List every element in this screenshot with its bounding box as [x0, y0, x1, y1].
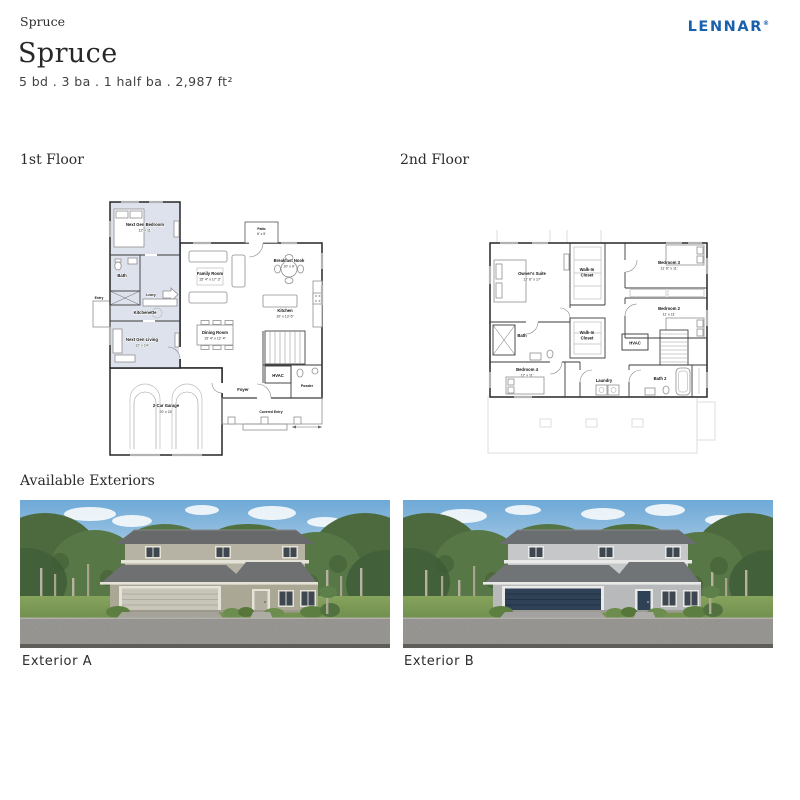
room-label-walk-in-closet-2b: Closet	[581, 336, 594, 341]
house	[483, 530, 701, 613]
dim-arrow-right	[318, 426, 322, 429]
road-texture	[20, 619, 390, 648]
first-floor-plan: Next Gen Bedroom 12' x 11' Bath Lndry En…	[85, 195, 330, 460]
room-label-bath2: Bath 2	[654, 376, 667, 381]
room-label-bedroom3: Bedroom 3	[658, 260, 681, 265]
exterior-a-image	[20, 500, 390, 648]
house	[100, 530, 318, 613]
room-label-garage: 2-Car Garage	[153, 403, 180, 408]
exterior-a-scene	[20, 500, 390, 648]
room-label-bath-2f: Bath	[517, 333, 527, 338]
room-label-bedroom2: Bedroom 2	[658, 306, 681, 311]
room-label-walk-in-closet-2: Walk-In	[580, 330, 595, 335]
room-label-bedroom4: Bedroom 4	[516, 367, 539, 372]
garage-door	[119, 586, 221, 612]
room-label-family-room: Family Room	[197, 271, 224, 276]
room-label-hvac-2: HVAC	[629, 341, 641, 346]
exterior-b-image	[403, 500, 773, 648]
garage-door	[502, 586, 604, 612]
room-label-covered-entry: Covered Entry	[259, 410, 282, 414]
room-label-owners-suite: Owner's Suite	[518, 271, 546, 276]
room-dims-next-gen-bedroom: 12' x 11'	[139, 229, 152, 233]
room-label-walk-in-closet-1: Walk-In	[580, 267, 595, 272]
second-floor-plan: Owner's Suite 13' 6" x 17' Walk-In Close…	[470, 230, 720, 465]
room-label-walk-in-closet-1b: Closet	[581, 273, 594, 278]
road-edge	[403, 644, 773, 648]
exterior-b-scene	[403, 500, 773, 648]
porch-step	[243, 424, 287, 430]
room-dims-dining-room: 15' 4" x 12' 4"	[204, 337, 226, 341]
road-texture	[403, 619, 773, 648]
room-label-lndry: Lndry	[146, 293, 156, 297]
room-label-foyer: Foyer	[237, 387, 249, 392]
first-floor-heading: 1st Floor	[20, 152, 84, 168]
room-label-powder: Powder	[301, 384, 314, 388]
room-label-entry: Entry	[95, 296, 104, 300]
room-label-kitchenette: Kitchenette	[134, 310, 157, 315]
lennar-logo[interactable]: LENNAR®	[688, 19, 769, 35]
second-floor-heading: 2nd Floor	[400, 152, 469, 168]
room-label-kitchen: Kitchen	[277, 308, 293, 313]
room-label-dining-room: Dining Room	[202, 330, 228, 335]
registered-mark: ®	[763, 20, 769, 27]
room-dims-bedroom4: 12' x 11'	[521, 374, 534, 378]
exterior-a-label: Exterior A	[22, 654, 92, 669]
room-label-hvac: HVAC	[272, 373, 284, 378]
room-dims-kitchen: 10' x 13' 6"	[276, 315, 294, 319]
breadcrumb[interactable]: Spruce	[20, 14, 65, 29]
room-dims-owners-suite: 13' 6" x 17'	[523, 278, 541, 282]
room-dims-bedroom3: 11' 6" x 11'	[661, 267, 678, 271]
lennar-logo-text: LENNAR	[688, 19, 763, 35]
room-dims-patio: 6' x 5'	[257, 232, 266, 236]
front-door	[252, 589, 270, 612]
room-dims-breakfast-nook: 10' x 9'	[283, 265, 294, 269]
floor-plan-page: Spruce LENNAR® Spruce 5 bd . 3 ba . 1 ha…	[0, 0, 800, 800]
stairs-2	[660, 330, 688, 365]
room-label-breakfast-nook: Breakfast Nook	[274, 258, 305, 263]
page-title: Spruce	[18, 38, 118, 69]
room-dims-bedroom2: 11' x 11'	[663, 313, 676, 317]
exterior-b-label: Exterior B	[404, 654, 474, 669]
specs-line: 5 bd . 3 ba . 1 half ba . 2,987 ft²	[19, 74, 233, 89]
entry-stoop	[93, 301, 110, 327]
room-label-bath: Bath	[117, 273, 127, 278]
room-label-laundry: Laundry	[596, 378, 613, 383]
room-label-patio: Patio	[257, 227, 265, 231]
room-dims-family-room: 15' 4" x 17' 3"	[199, 278, 221, 282]
front-door	[635, 589, 653, 612]
room-label-next-gen-bedroom: Next Gen Bedroom	[126, 222, 164, 227]
room-dims-garage: 20' x 20'	[159, 410, 172, 414]
available-exteriors-heading: Available Exteriors	[20, 473, 155, 489]
dim-arrow-left	[292, 426, 296, 429]
room-label-next-gen-living: Next Gen Living	[126, 337, 158, 342]
road-edge	[20, 644, 390, 648]
room-dims-next-gen-living: 12' x 14'	[135, 344, 148, 348]
